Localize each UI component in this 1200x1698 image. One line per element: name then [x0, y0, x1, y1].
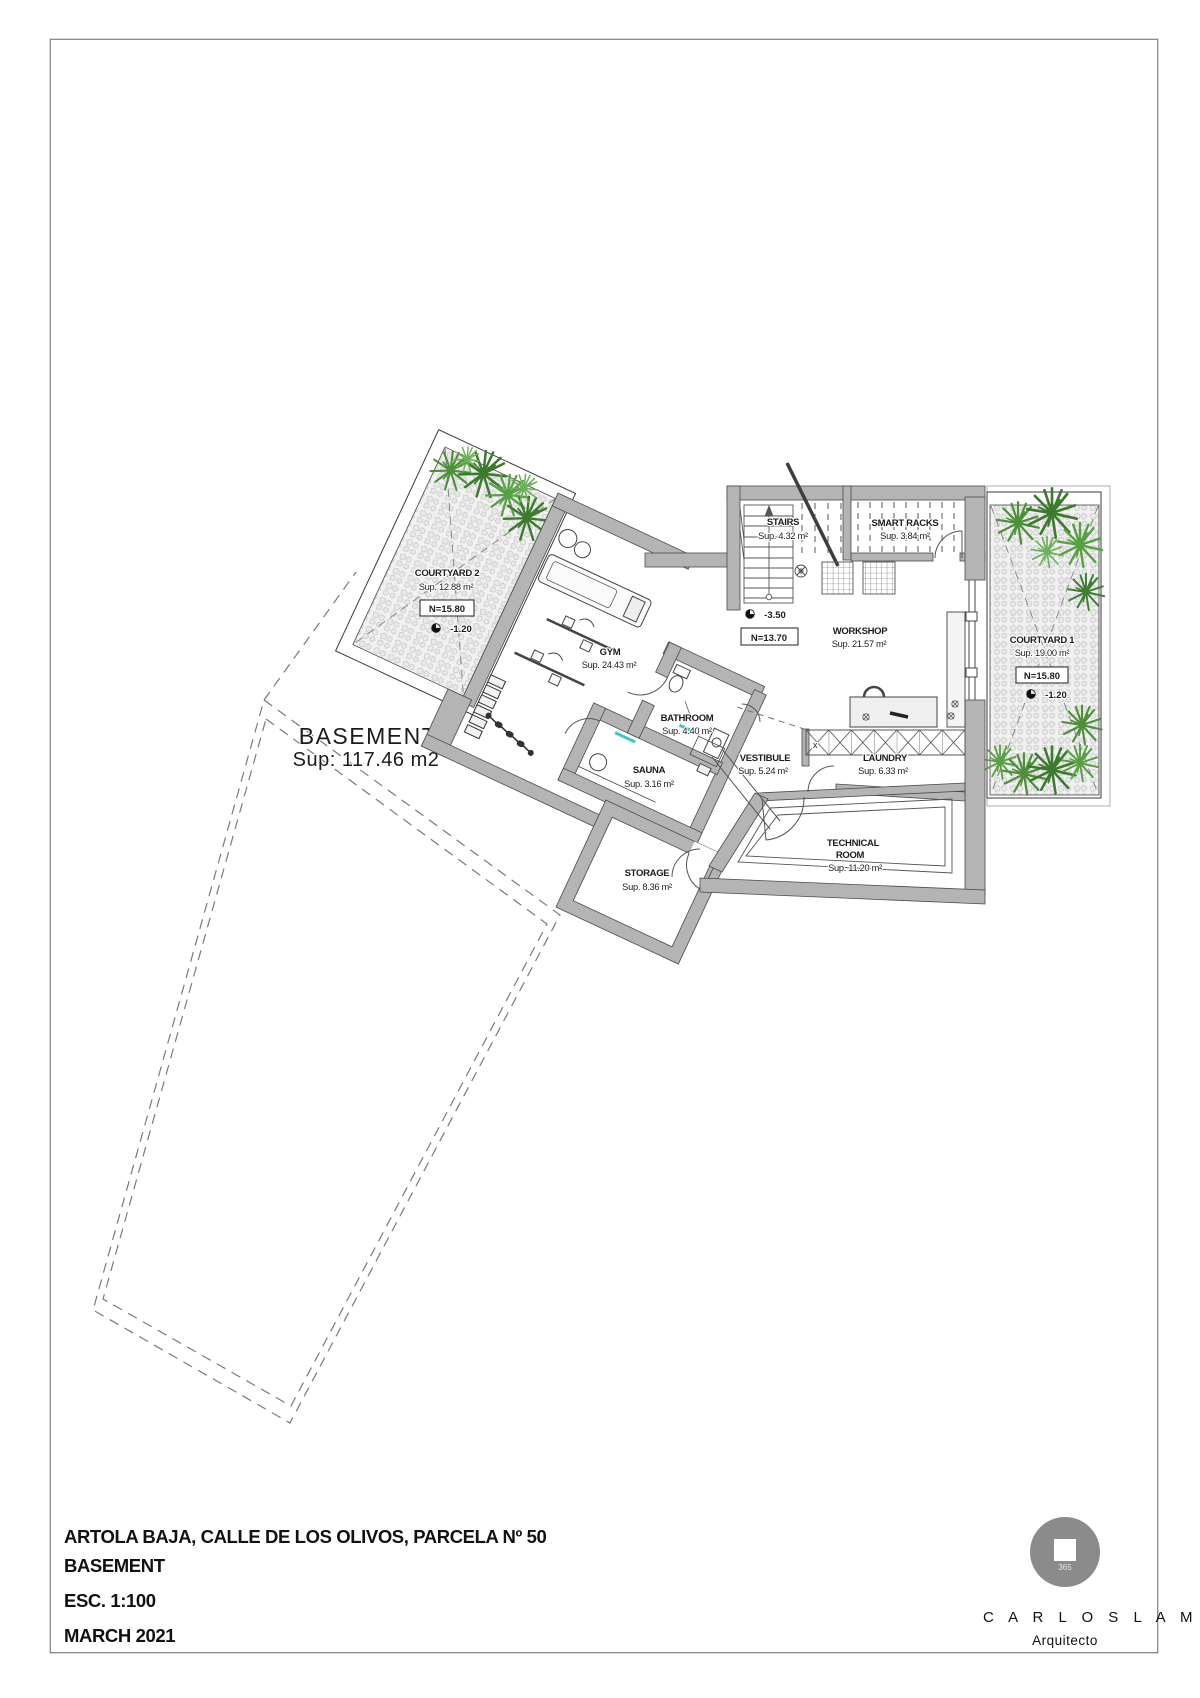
laundry-area: Sup. 6.33 m²: [858, 766, 908, 776]
architect-logo-icon: 365: [1030, 1517, 1100, 1587]
stairs-label: STAIRS: [767, 517, 799, 528]
stair-depth-symbol: [746, 610, 755, 619]
architect-title: Arquitecto: [983, 1633, 1147, 1648]
section-cut-line: [787, 463, 838, 566]
courtyard2-label: COURTYARD 2: [415, 568, 479, 579]
drawing-sheet: BASEMENT Sup: 117.46 m2: [0, 0, 1200, 1698]
technical-label-1: TECHNICAL: [827, 838, 880, 849]
sheet-scale: ESC. 1:100: [64, 1590, 546, 1612]
bathroom-area: Sup. 4.40 m²: [662, 726, 712, 736]
laundry-label: LAUNDRY: [863, 753, 908, 764]
architect-name: C A R L O S L A M A S: [983, 1609, 1147, 1626]
courtyard1-depth-symbol: [1027, 690, 1036, 699]
technical-room-lining: [738, 799, 952, 873]
courtyard1-depth: -1.20: [1045, 690, 1067, 701]
laundry-rack: [806, 730, 965, 755]
junction-walls: [645, 553, 740, 567]
project-title: ARTOLA BAJA, CALLE DE LOS OLIVOS, PARCEL…: [64, 1526, 546, 1548]
smart-racks-area: Sup. 3.84 m²: [880, 531, 930, 541]
courtyard1-area: Sup. 19.00 m²: [1015, 648, 1070, 658]
gym-area: Sup. 24.43 m²: [582, 660, 637, 670]
stair-level: N=13.70: [751, 633, 787, 644]
courtyard1-level: N=15.80: [1024, 671, 1060, 682]
basement-floor-area: Sup: 117.46 m2: [293, 749, 440, 771]
courtyard1-label: COURTYARD 1: [1010, 635, 1075, 646]
workshop-label: WORKSHOP: [833, 626, 889, 637]
courtyard2-area: Sup. 12.88 m²: [419, 582, 474, 592]
gym-label: GYM: [600, 647, 621, 658]
smart-racks-label: SMART RACKS: [872, 518, 939, 529]
logo-square-icon: [1054, 1539, 1076, 1561]
vestibule-area: Sup. 5.24 m²: [738, 766, 788, 776]
courtyard2-level: N=15.80: [429, 604, 465, 615]
workshop-window-wall: [966, 580, 977, 700]
storage-label: STORAGE: [625, 868, 670, 879]
smart-racks-door-arc: [935, 531, 962, 558]
sauna-area: Sup. 3.16 m²: [624, 779, 674, 789]
technical-label-2: ROOM: [836, 850, 865, 861]
floor-plan-drawing: BASEMENT Sup: 117.46 m2: [0, 0, 1200, 1698]
laundry-rack-cell-label: x: [813, 740, 818, 750]
storage-area: Sup. 8.36 m²: [622, 882, 672, 892]
courtyard2-depth-symbol: [432, 624, 441, 633]
basement-floor-label: BASEMENT: [299, 723, 438, 749]
technical-area: Sup. 11.20 m²: [828, 863, 882, 873]
sheet-date: MARCH 2021: [64, 1625, 546, 1647]
stair-depth: -3.50: [764, 610, 786, 621]
sauna-label: SAUNA: [633, 765, 666, 776]
sauna-stove: [587, 751, 610, 774]
logo-number: 365: [1058, 1564, 1071, 1572]
workshop-area: Sup. 21.57 m²: [832, 639, 887, 649]
bathroom-label: BATHROOM: [661, 713, 714, 724]
sheet-name: BASEMENT: [64, 1555, 546, 1577]
architect-logo-block: 365 C A R L O S L A M A S Arquitecto: [983, 1517, 1147, 1648]
stairs-area: Sup. 4.32 m²: [758, 531, 808, 541]
courtyard1: [983, 486, 1110, 806]
vestibule-label: VESTIBULE: [740, 753, 791, 764]
smart-racks-shelving: [802, 502, 954, 556]
title-block: ARTOLA BAJA, CALLE DE LOS OLIVOS, PARCEL…: [64, 1526, 546, 1647]
courtyard2-depth: -1.20: [450, 624, 472, 635]
